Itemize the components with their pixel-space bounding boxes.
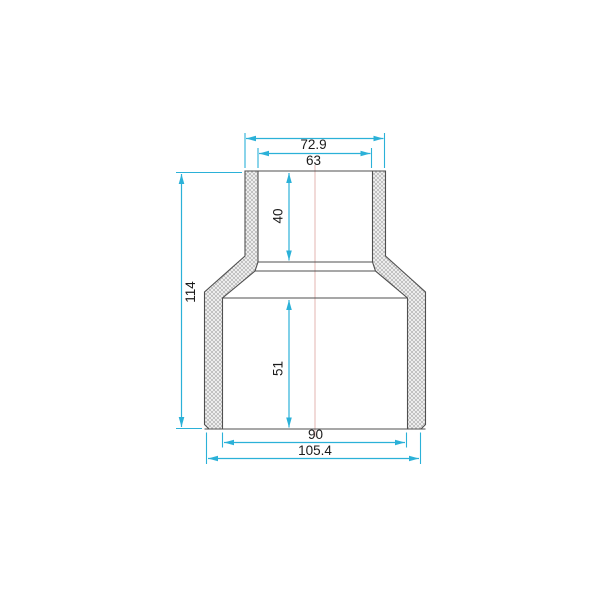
right-wall-section	[373, 171, 426, 429]
left-wall-section	[205, 171, 259, 429]
dim-label-bottom-socket-depth: 51	[271, 361, 286, 376]
dim-label-bottom-inner-width: 90	[308, 427, 323, 442]
dim-label-top-inner-width: 63	[306, 153, 321, 168]
reducer-cross-section-drawing: 72.9 63 40 114 51 90	[0, 0, 603, 603]
dim-label-top-socket-depth: 40	[271, 208, 286, 223]
dim-label-overall-height: 114	[183, 281, 198, 303]
part-geometry	[205, 165, 426, 437]
dimension-bottom-socket-depth: 51	[271, 300, 290, 428]
dim-label-top-outer-width: 72.9	[300, 137, 326, 152]
dim-label-bottom-outer-width: 105.4	[298, 443, 332, 458]
technical-drawing-canvas: 72.9 63 40 114 51 90	[0, 0, 603, 603]
dimension-top-socket-depth: 40	[271, 173, 290, 261]
